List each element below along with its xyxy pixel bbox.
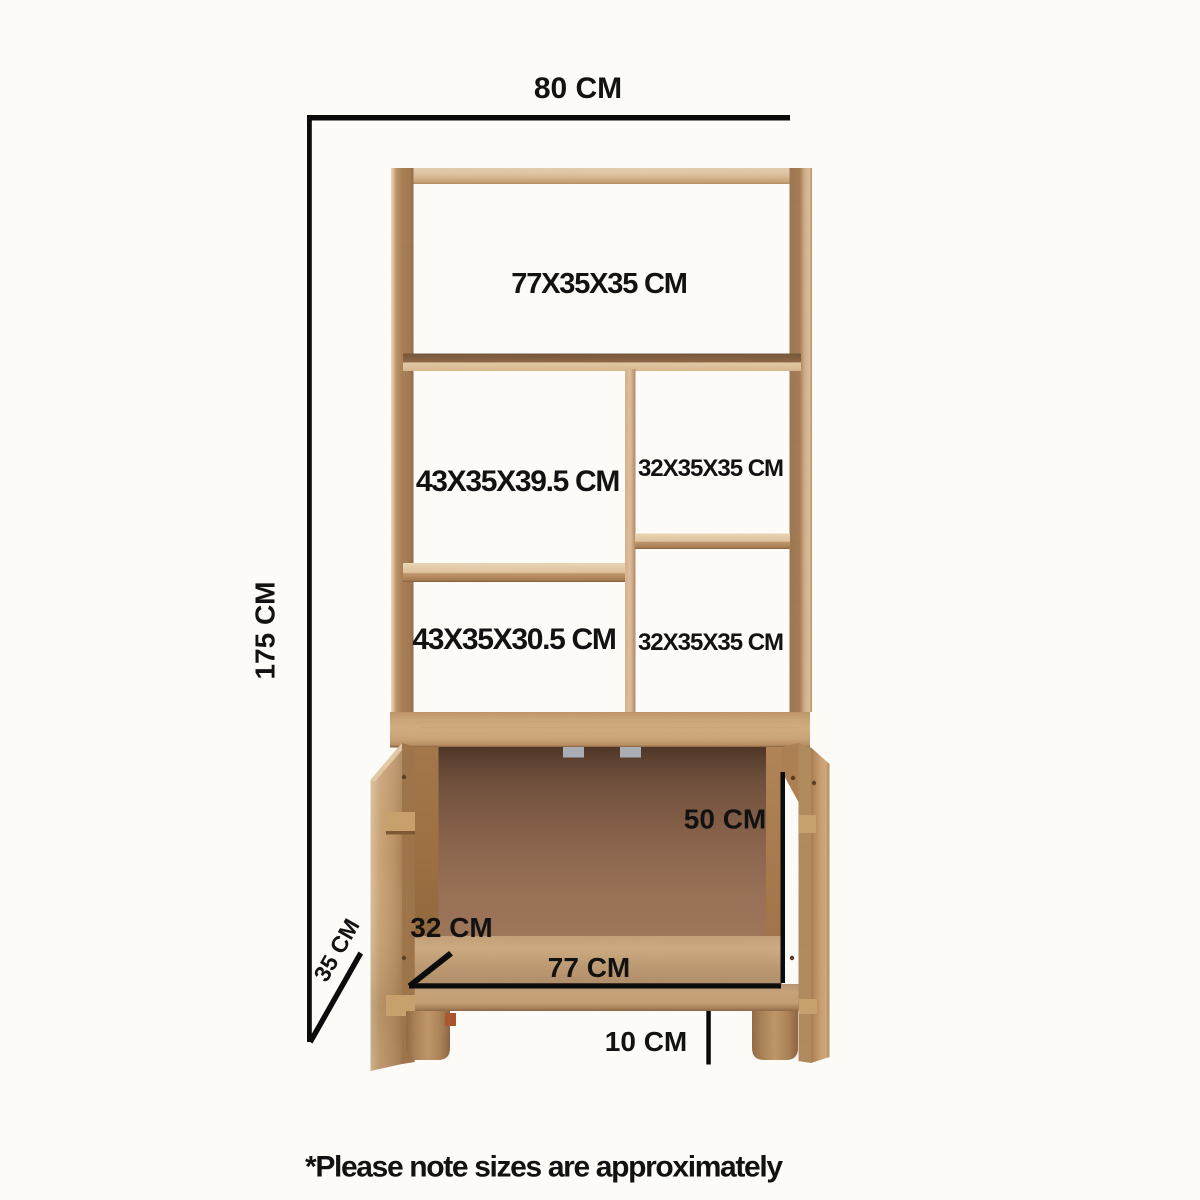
svg-text:32X35X35 CM: 32X35X35 CM [638,629,783,656]
svg-text:80 CM: 80 CM [534,72,622,105]
svg-text:50 CM: 50 CM [684,804,766,835]
svg-text:43X35X39.5 CM: 43X35X39.5 CM [416,465,619,498]
svg-text:10 CM: 10 CM [605,1026,687,1057]
svg-text:43X35X30.5 CM: 43X35X30.5 CM [412,623,615,656]
svg-text:77X35X35 CM: 77X35X35 CM [511,268,686,300]
svg-text:32 CM: 32 CM [410,912,492,943]
svg-text:77 CM: 77 CM [548,952,630,983]
svg-text:*Please note sizes are approxi: *Please note sizes are approximately [305,1151,783,1184]
svg-text:175 CM: 175 CM [250,581,281,679]
svg-text:32X35X35 CM: 32X35X35 CM [638,455,783,482]
